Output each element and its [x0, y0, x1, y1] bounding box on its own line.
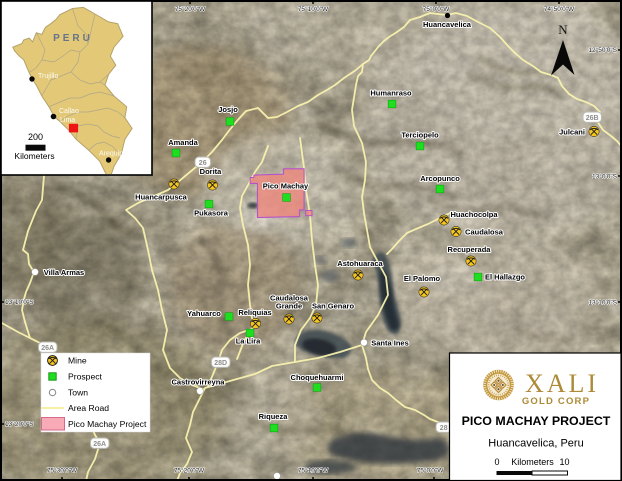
svg-text:Huancavelica, Peru: Huancavelica, Peru: [488, 438, 583, 450]
svg-text:Huancarpusca: Huancarpusca: [135, 193, 188, 202]
svg-text:La Lira: La Lira: [236, 337, 261, 346]
svg-text:Arcopunco: Arcopunco: [420, 174, 460, 183]
svg-text:200: 200: [28, 132, 43, 142]
svg-text:75°10'0"W: 75°10'0"W: [298, 467, 329, 475]
svg-text:San Genaro: San Genaro: [312, 302, 355, 311]
svg-text:Kilometers: Kilometers: [511, 457, 554, 467]
svg-text:26B: 26B: [586, 115, 599, 122]
svg-text:Caudalosa: Caudalosa: [465, 228, 504, 237]
svg-text:74°50'0"W: 74°50'0"W: [544, 5, 575, 13]
svg-text:Recuperada: Recuperada: [448, 245, 492, 254]
svg-text:Trujillo: Trujillo: [38, 73, 58, 80]
svg-text:Area Road: Area Road: [68, 403, 109, 413]
svg-text:Lima: Lima: [60, 117, 75, 124]
svg-text:XALI: XALI: [525, 369, 599, 398]
svg-text:Villa Armas: Villa Armas: [44, 268, 84, 277]
svg-text:13°10'0"S: 13°10'0"S: [5, 298, 34, 306]
svg-text:Josjo: Josjo: [218, 105, 238, 114]
svg-text:Grande: Grande: [276, 302, 302, 311]
svg-text:Riqueza: Riqueza: [259, 412, 289, 421]
svg-text:Prospect: Prospect: [68, 372, 103, 382]
svg-text:Terciopelo: Terciopelo: [401, 131, 439, 140]
svg-text:Pico Machay: Pico Machay: [263, 182, 309, 191]
svg-text:75°20'0"W: 75°20'0"W: [175, 5, 206, 13]
svg-text:13°20'0"S: 13°20'0"S: [5, 420, 34, 428]
svg-text:75°10'0"W: 75°10'0"W: [298, 5, 329, 13]
svg-text:PERU: PERU: [53, 33, 93, 44]
svg-text:0: 0: [494, 457, 499, 467]
svg-text:Callao: Callao: [59, 108, 79, 115]
svg-text:75°30'0"W: 75°30'0"W: [47, 467, 78, 475]
svg-text:GOLD CORP: GOLD CORP: [522, 396, 590, 407]
svg-text:75°20'0"W: 75°20'0"W: [174, 467, 205, 475]
svg-text:Julcani: Julcani: [559, 128, 585, 137]
svg-text:Yahuarco: Yahuarco: [187, 309, 221, 318]
svg-text:26: 26: [199, 160, 207, 167]
svg-text:13°0'0"S: 13°0'0"S: [592, 173, 618, 181]
svg-text:Choquehuarmi: Choquehuarmi: [291, 373, 344, 382]
svg-text:Kilometers: Kilometers: [14, 151, 54, 161]
svg-text:El Palomo: El Palomo: [404, 274, 441, 283]
svg-text:Dorita: Dorita: [200, 167, 222, 176]
svg-text:Pico Machay Project: Pico Machay Project: [68, 419, 147, 429]
svg-text:10: 10: [559, 457, 569, 467]
svg-text:Town: Town: [68, 388, 88, 398]
svg-text:Arequipa: Arequipa: [99, 151, 127, 158]
svg-text:28D: 28D: [214, 360, 227, 367]
svg-text:26A: 26A: [41, 345, 54, 352]
svg-text:13°10'0"S: 13°10'0"S: [588, 299, 617, 307]
svg-text:Pukasora: Pukasora: [194, 209, 229, 218]
svg-text:Santa Ines: Santa Ines: [371, 339, 409, 348]
svg-text:75°0'0"W: 75°0'0"W: [423, 5, 451, 13]
svg-text:75°0'0"W: 75°0'0"W: [417, 467, 445, 475]
svg-text:28: 28: [440, 425, 448, 432]
svg-text:12°50'0"S: 12°50'0"S: [588, 46, 617, 54]
svg-text:PICO MACHAY PROJECT: PICO MACHAY PROJECT: [462, 414, 611, 428]
svg-text:Astohuaraca: Astohuaraca: [337, 259, 383, 268]
svg-text:Reliquias: Reliquias: [238, 308, 271, 317]
svg-text:Huancavelica: Huancavelica: [423, 20, 472, 29]
svg-text:Amanda: Amanda: [168, 138, 198, 147]
svg-text:Humanraso: Humanraso: [370, 89, 412, 98]
svg-text:26A: 26A: [93, 441, 106, 448]
svg-text:El Hallazgo: El Hallazgo: [485, 273, 525, 282]
svg-text:Castrovirreyna: Castrovirreyna: [172, 378, 226, 387]
svg-text:N: N: [558, 22, 568, 37]
svg-text:Huachocolpa: Huachocolpa: [450, 210, 498, 219]
svg-text:Mine: Mine: [68, 356, 87, 366]
